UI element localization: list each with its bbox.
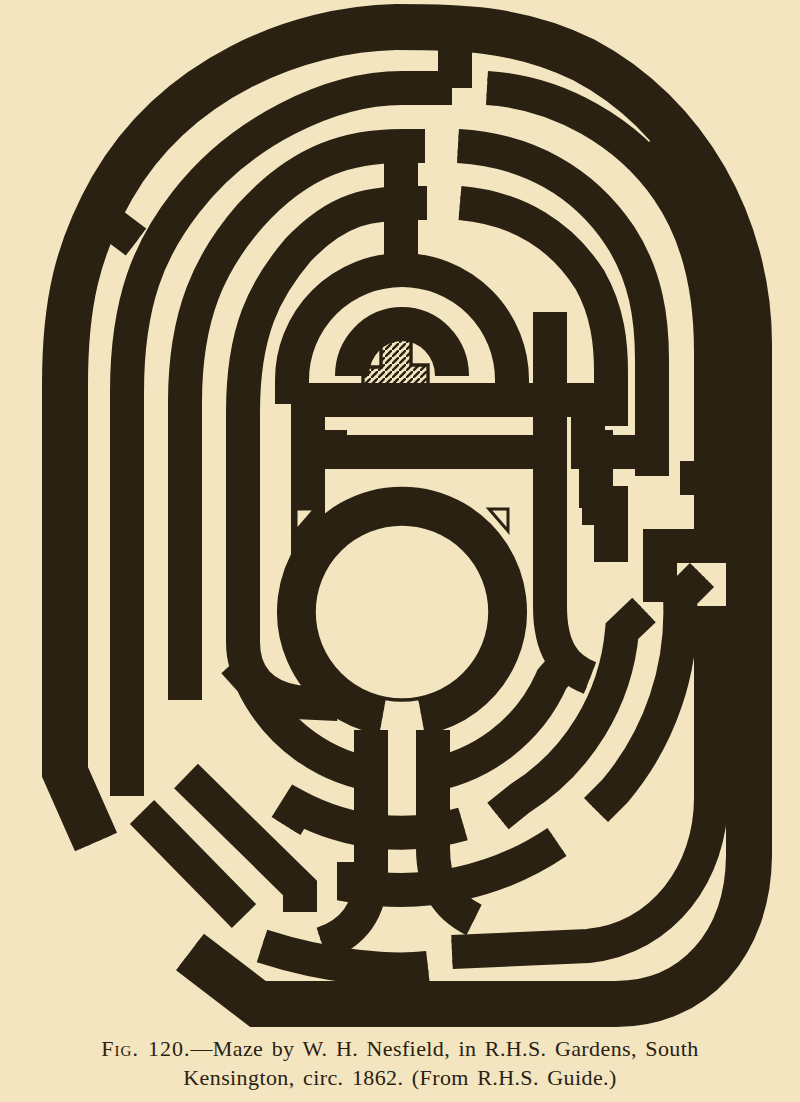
maze-walls bbox=[65, 27, 749, 1004]
caption-line-1: Fig. 120.—Maze by W. H. Nesfield, in R.H… bbox=[0, 1034, 800, 1063]
maze-wall-hatch bbox=[330, 430, 565, 452]
maze-figure bbox=[0, 0, 800, 1032]
book-page: Fig. 120.—Maze by W. H. Nesfield, in R.H… bbox=[0, 0, 800, 1102]
caption-line-1-text: —Maze by W. H. Nesfield, in R.H.S. Garde… bbox=[190, 1036, 698, 1061]
caption-fig-number: Fig. 120. bbox=[101, 1036, 190, 1061]
maze-wall-hatch bbox=[582, 430, 596, 508]
maze-figure-container bbox=[0, 0, 800, 1032]
maze-center-goal-circle bbox=[314, 524, 490, 700]
caption-line-2: Kensington, circ. 1862. (From R.H.S. Gui… bbox=[0, 1063, 800, 1092]
figure-caption: Fig. 120.—Maze by W. H. Nesfield, in R.H… bbox=[0, 1034, 800, 1092]
